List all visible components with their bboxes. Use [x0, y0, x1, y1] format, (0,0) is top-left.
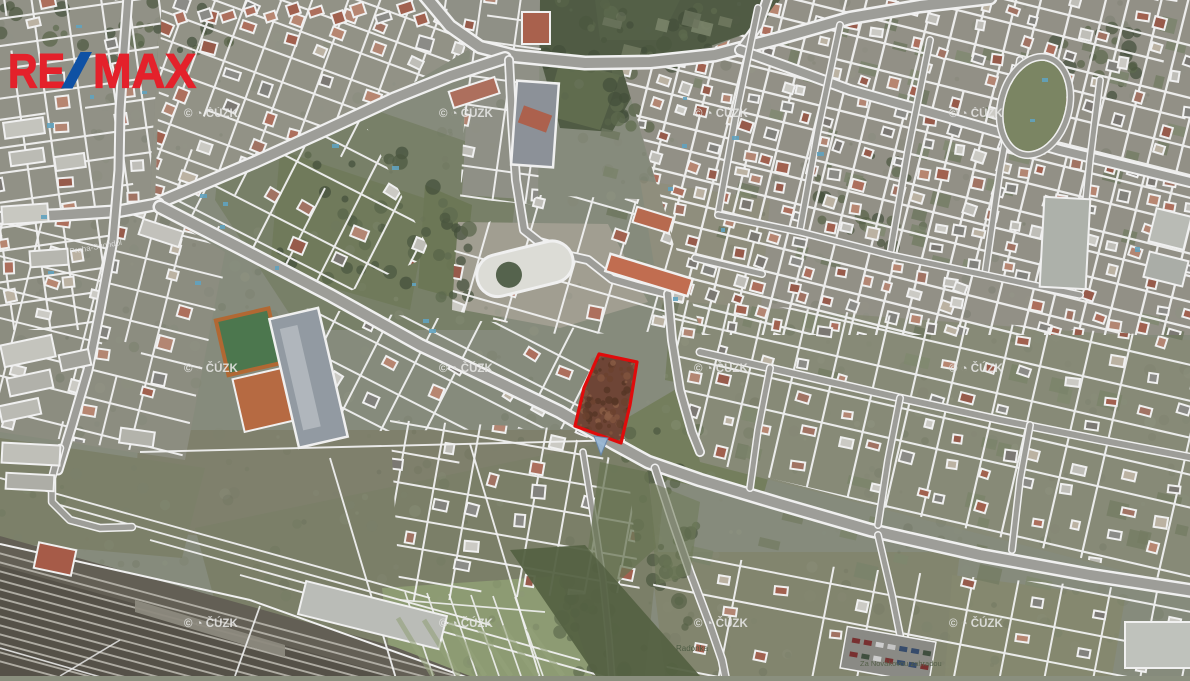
- svg-text:© ◔ ČÚZK: © ◔ ČÚZK: [439, 362, 493, 375]
- svg-text:MAX: MAX: [93, 46, 196, 99]
- svg-text:© ◔ ČÚZK: © ◔ ČÚZK: [439, 617, 493, 630]
- svg-text:© ◔ ČÚZK: © ◔ ČÚZK: [694, 362, 748, 375]
- svg-text:Radonka: Radonka: [676, 644, 709, 653]
- svg-text:© ◔ ČÚZK: © ◔ ČÚZK: [184, 107, 238, 120]
- svg-text:© ◔ ČÚZK: © ◔ ČÚZK: [694, 617, 748, 630]
- svg-text:© ◔ ČÚZK: © ◔ ČÚZK: [184, 362, 238, 375]
- svg-text:© ◔ ČÚZK: © ◔ ČÚZK: [949, 362, 1003, 375]
- svg-text:Za Novákovou zahradou: Za Novákovou zahradou: [860, 659, 942, 668]
- svg-text:© ◔ ČÚZK: © ◔ ČÚZK: [949, 617, 1003, 630]
- svg-text:© ◔ ČÚZK: © ◔ ČÚZK: [949, 107, 1003, 120]
- svg-text:© ◔ ČÚZK: © ◔ ČÚZK: [184, 617, 238, 630]
- svg-text:© ◔ ČÚZK: © ◔ ČÚZK: [694, 107, 748, 120]
- svg-text:© ◔ ČÚZK: © ◔ ČÚZK: [439, 107, 493, 120]
- svg-text:RE: RE: [8, 46, 65, 99]
